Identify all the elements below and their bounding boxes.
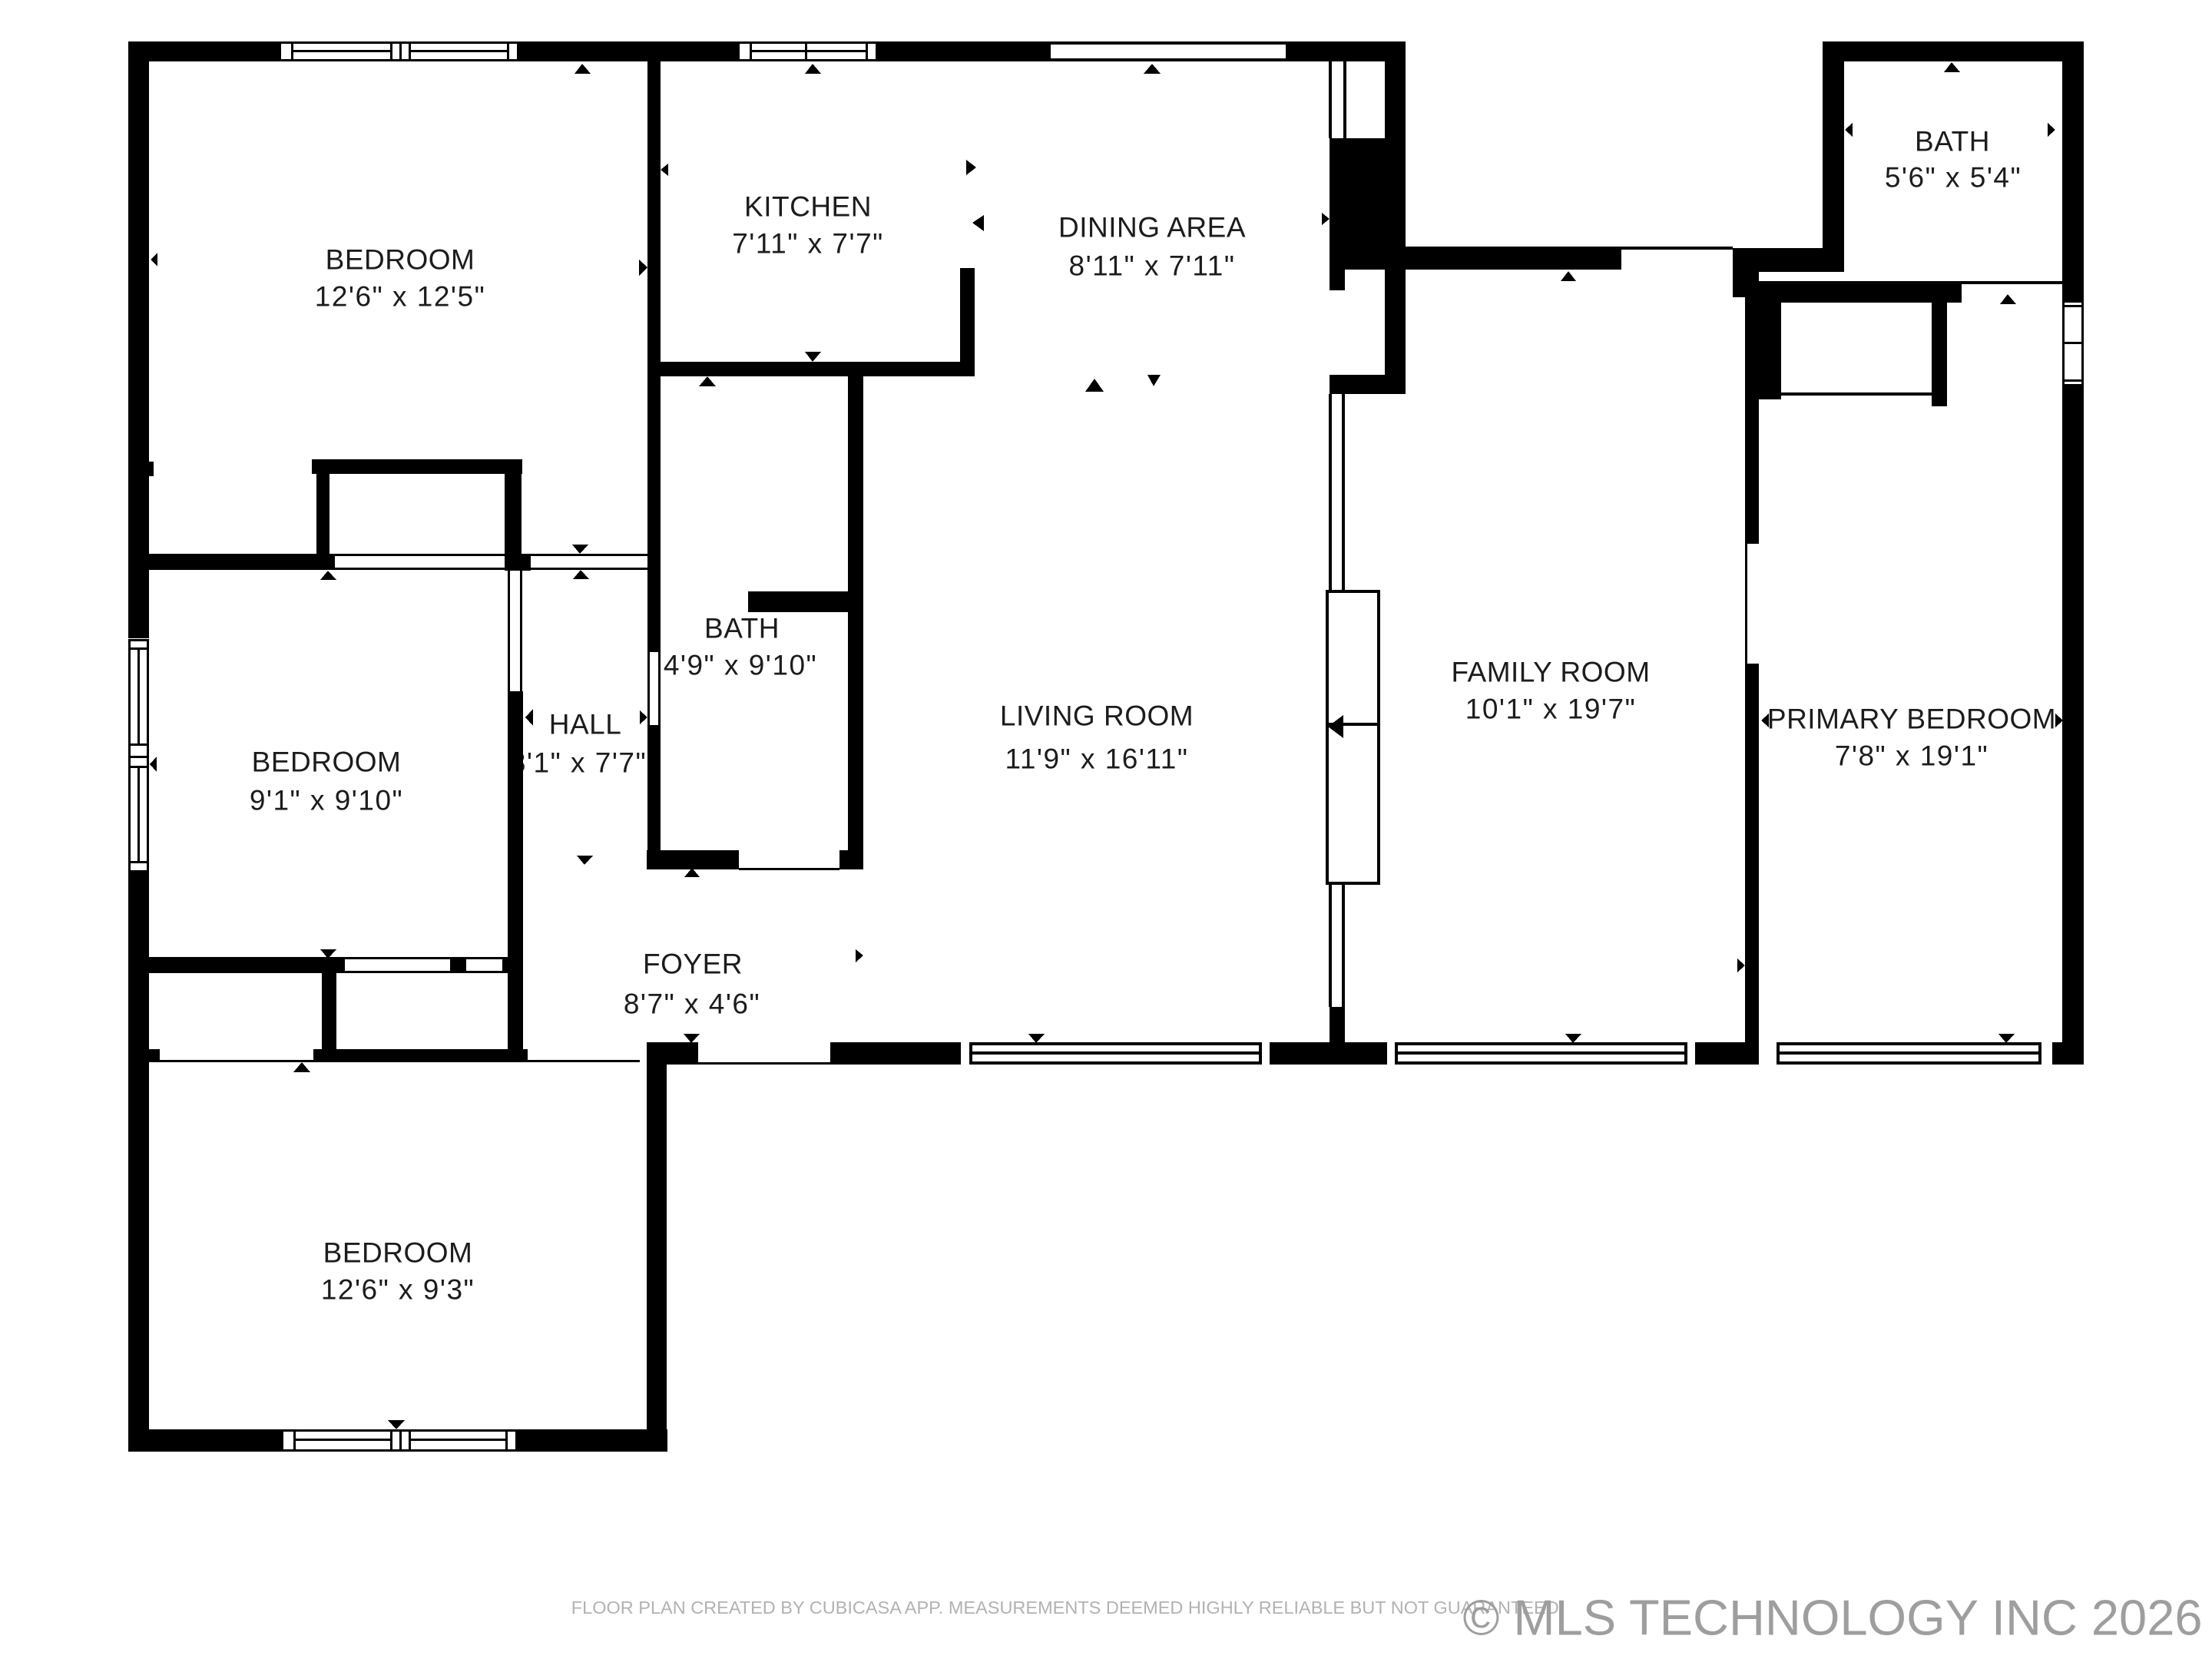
- svg-text:8'11" x 7'11": 8'11" x 7'11": [1069, 250, 1236, 282]
- svg-text:LIVING ROOM: LIVING ROOM: [1000, 700, 1194, 732]
- svg-text:HALL: HALL: [549, 709, 622, 740]
- svg-text:© MLS TECHNOLOGY INC 2026: © MLS TECHNOLOGY INC 2026: [1462, 1590, 2202, 1646]
- svg-text:12'6" x 9'3": 12'6" x 9'3": [321, 1274, 475, 1306]
- svg-text:BATH: BATH: [704, 613, 780, 644]
- svg-text:BEDROOM: BEDROOM: [323, 1237, 473, 1269]
- svg-text:BEDROOM: BEDROOM: [326, 244, 475, 276]
- svg-text:10'1" x 19'7": 10'1" x 19'7": [1465, 694, 1636, 725]
- svg-text:7'11" x 7'7": 7'11" x 7'7": [732, 228, 884, 260]
- svg-text:12'6" x 12'5": 12'6" x 12'5": [315, 281, 485, 313]
- svg-text:DINING AREA: DINING AREA: [1058, 212, 1246, 243]
- svg-text:7'8" x 19'1": 7'8" x 19'1": [1835, 740, 1988, 772]
- svg-text:FOYER: FOYER: [643, 949, 743, 980]
- svg-text:FAMILY ROOM: FAMILY ROOM: [1451, 657, 1650, 688]
- svg-text:8'1" x 7'7": 8'1" x 7'7": [510, 747, 647, 779]
- svg-text:KITCHEN: KITCHEN: [744, 191, 872, 223]
- svg-text:5'6" x 5'4": 5'6" x 5'4": [1885, 162, 2022, 194]
- svg-text:FLOOR PLAN CREATED BY CUBICASA: FLOOR PLAN CREATED BY CUBICASA APP. MEAS…: [571, 1598, 1564, 1618]
- svg-text:PRIMARY BEDROOM: PRIMARY BEDROOM: [1767, 704, 2056, 735]
- svg-text:9'1" x 9'10": 9'1" x 9'10": [250, 785, 403, 816]
- svg-text:4'9" x 9'10": 4'9" x 9'10": [664, 650, 817, 681]
- svg-text:11'9" x 16'11": 11'9" x 16'11": [1005, 743, 1188, 775]
- svg-text:8'7" x 4'6": 8'7" x 4'6": [624, 988, 760, 1020]
- svg-text:BATH: BATH: [1915, 126, 1990, 157]
- svg-text:BEDROOM: BEDROOM: [252, 747, 402, 778]
